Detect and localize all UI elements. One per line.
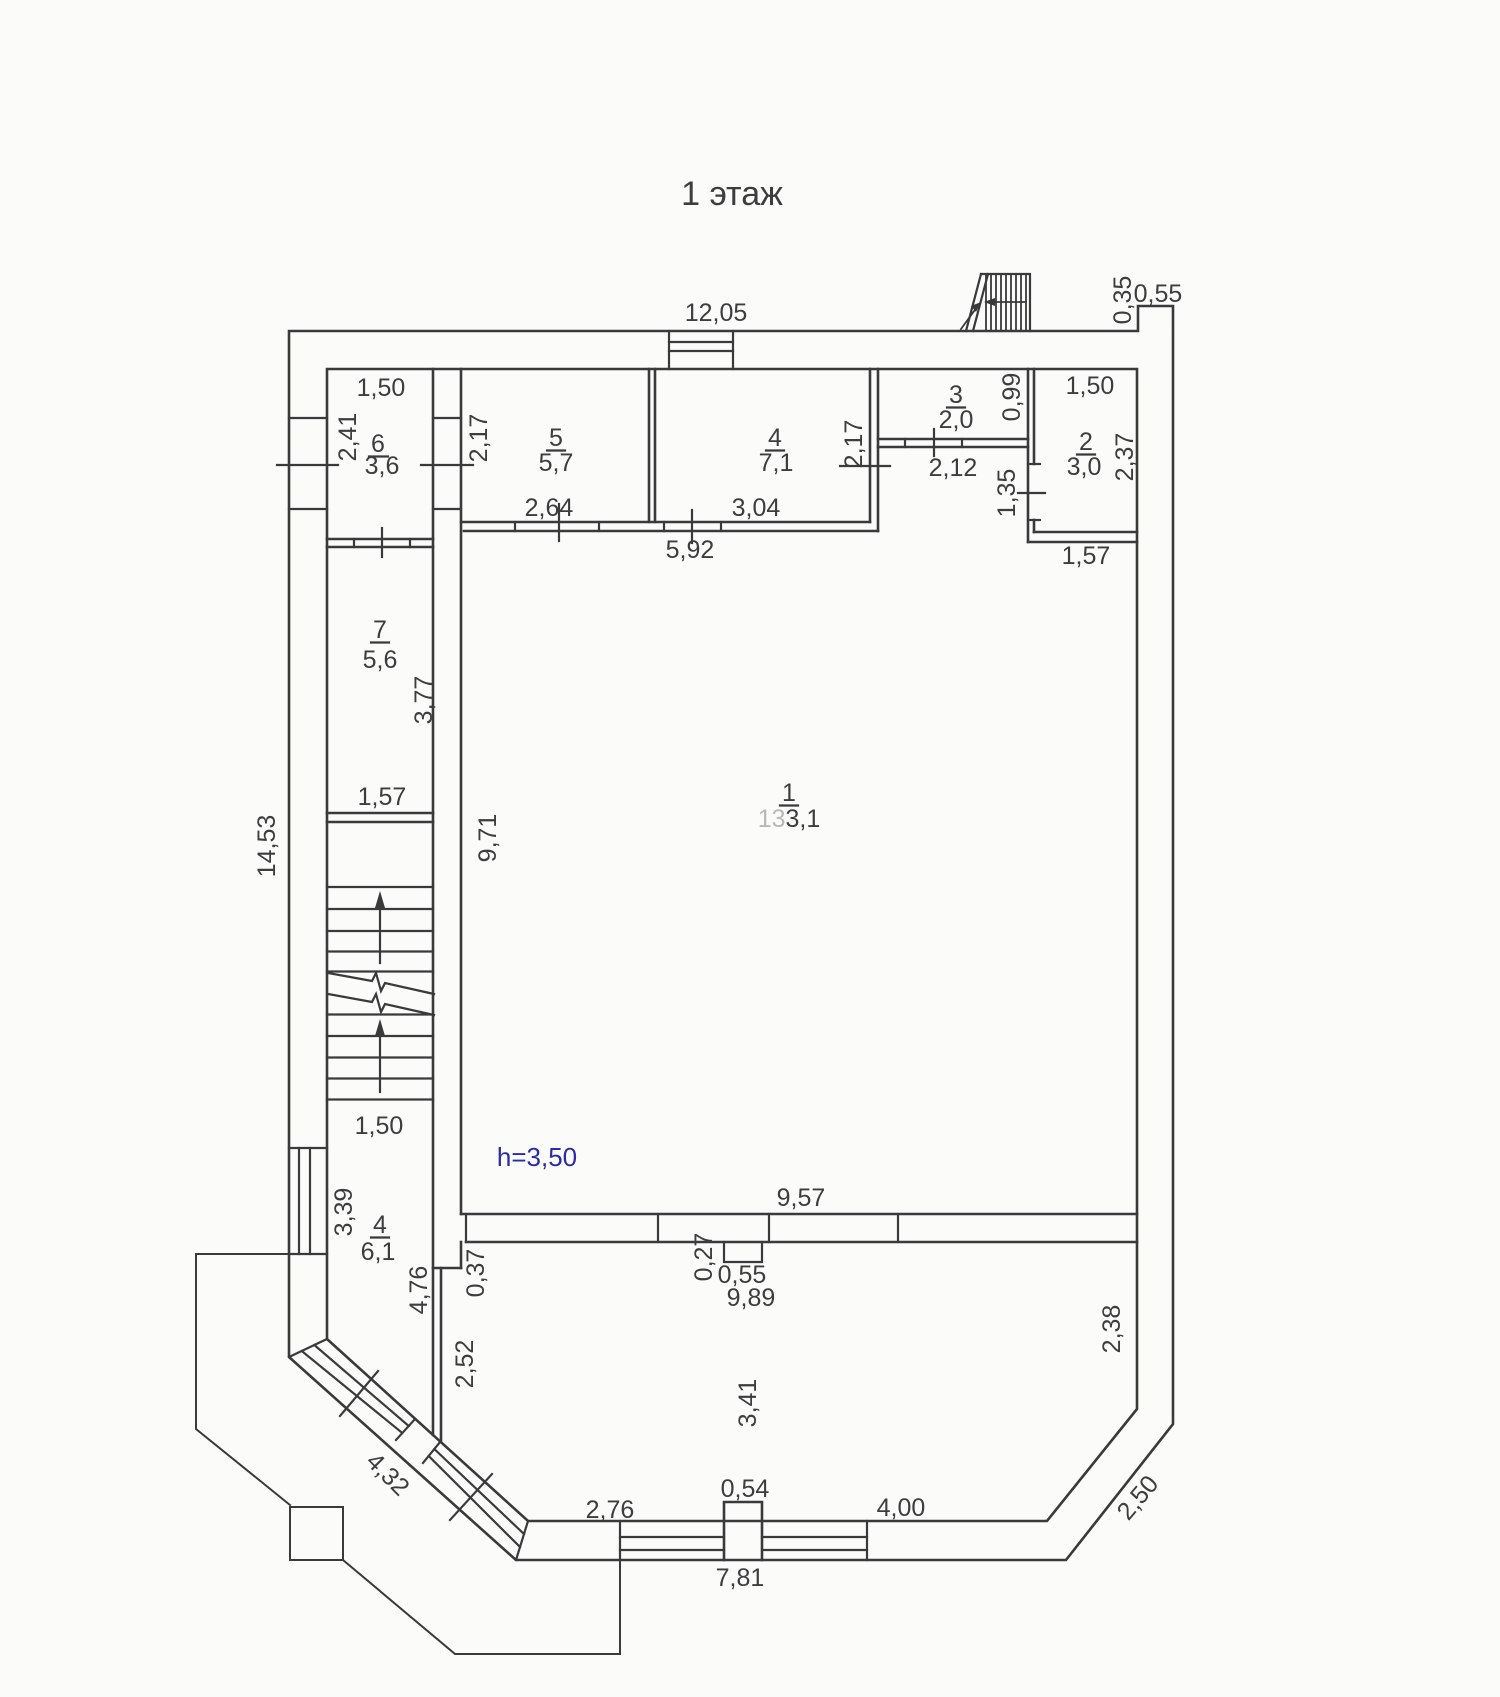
svg-text:5: 5 bbox=[549, 424, 563, 452]
svg-text:0,54: 0,54 bbox=[721, 1475, 770, 1503]
svg-text:2,52: 2,52 bbox=[451, 1340, 479, 1389]
svg-text:4,76: 4,76 bbox=[405, 1266, 433, 1315]
svg-text:2,12: 2,12 bbox=[929, 454, 978, 482]
svg-text:0,99: 0,99 bbox=[998, 373, 1026, 422]
svg-text:4,00: 4,00 bbox=[877, 1494, 926, 1522]
svg-text:1: 1 bbox=[782, 779, 796, 807]
svg-text:3,41: 3,41 bbox=[734, 1379, 762, 1428]
svg-text:12,05: 12,05 bbox=[685, 299, 748, 327]
svg-text:2,0: 2,0 bbox=[939, 406, 974, 434]
svg-text:7: 7 bbox=[373, 616, 387, 644]
svg-text:3: 3 bbox=[949, 381, 963, 409]
svg-text:2,37: 2,37 bbox=[1111, 433, 1139, 482]
svg-text:0,55: 0,55 bbox=[1134, 280, 1183, 308]
svg-text:7,81: 7,81 bbox=[716, 1564, 765, 1592]
svg-text:133,1: 133,1 bbox=[758, 805, 821, 833]
svg-text:4: 4 bbox=[768, 424, 782, 452]
svg-text:1 этаж: 1 этаж bbox=[681, 175, 783, 213]
svg-text:2,64: 2,64 bbox=[525, 494, 574, 522]
svg-text:5,92: 5,92 bbox=[666, 536, 715, 564]
svg-text:6,1: 6,1 bbox=[361, 1238, 396, 1266]
svg-text:2,38: 2,38 bbox=[1098, 1305, 1126, 1354]
svg-text:5,6: 5,6 bbox=[363, 646, 398, 674]
svg-text:7,1: 7,1 bbox=[759, 449, 794, 477]
svg-text:1,50: 1,50 bbox=[355, 1112, 404, 1140]
svg-text:14,53: 14,53 bbox=[253, 815, 281, 878]
svg-text:2,41: 2,41 bbox=[334, 413, 362, 462]
svg-text:5,7: 5,7 bbox=[539, 449, 574, 477]
svg-text:0,27: 0,27 bbox=[690, 1233, 718, 1282]
svg-text:2,17: 2,17 bbox=[465, 414, 493, 463]
svg-text:3,04: 3,04 bbox=[732, 494, 781, 522]
svg-text:9,57: 9,57 bbox=[777, 1184, 826, 1212]
svg-text:4: 4 bbox=[373, 1211, 387, 1239]
svg-text:1,50: 1,50 bbox=[1066, 372, 1115, 400]
svg-text:3,39: 3,39 bbox=[330, 1188, 358, 1237]
svg-text:2,17: 2,17 bbox=[840, 420, 868, 469]
svg-text:3,0: 3,0 bbox=[1067, 453, 1102, 481]
svg-text:9,71: 9,71 bbox=[474, 814, 502, 863]
svg-text:2,76: 2,76 bbox=[586, 1496, 635, 1524]
svg-text:0,37: 0,37 bbox=[462, 1249, 490, 1298]
svg-text:1,35: 1,35 bbox=[993, 469, 1021, 518]
svg-text:3,77: 3,77 bbox=[410, 676, 438, 725]
svg-text:1,57: 1,57 bbox=[1062, 542, 1111, 570]
svg-text:1,57: 1,57 bbox=[358, 783, 407, 811]
svg-text:h=3,50: h=3,50 bbox=[497, 1142, 577, 1172]
svg-text:2: 2 bbox=[1079, 428, 1093, 456]
svg-text:3,6: 3,6 bbox=[365, 452, 400, 480]
svg-text:1,50: 1,50 bbox=[357, 374, 406, 402]
svg-text:9,89: 9,89 bbox=[727, 1284, 776, 1312]
